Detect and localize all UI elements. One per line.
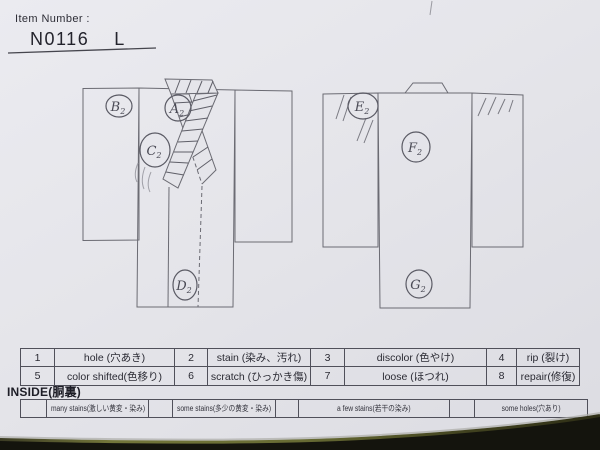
back-body [378, 93, 472, 308]
inside-checkbox-3 [276, 400, 299, 417]
inside-label-2: some stains(多少の黄変・染み) [173, 400, 276, 417]
inside-label-4: some holes(穴あり) [475, 400, 587, 417]
mark-label-g2: G2 [410, 278, 425, 294]
legend-label-7: loose (ほつれ) [345, 367, 487, 385]
legend-code-8: 8 [487, 367, 517, 385]
front-collar [163, 79, 218, 188]
inside-lining-table: many stains(激しい黄変・染み) some stains(多少の黄変・… [20, 399, 588, 418]
legend-code-4: 4 [487, 349, 517, 367]
mark-label-c2: C2 [146, 144, 161, 160]
legend-code-1: 1 [21, 349, 55, 367]
shoulder-hatch-right [478, 97, 513, 116]
inside-checkbox-1 [21, 400, 47, 417]
legend-label-3: discolor (色やけ) [345, 349, 487, 367]
legend-code-2: 2 [175, 349, 208, 367]
back-right-sleeve [472, 93, 523, 247]
legend-code-7: 7 [311, 367, 345, 385]
inside-section-title: INSIDE(胴裏) [7, 383, 81, 400]
mark-label-f2: F2 [407, 141, 422, 157]
condition-mark-circles [106, 93, 432, 300]
mark-label-e2: E2 [354, 100, 370, 116]
back-collar [405, 83, 448, 93]
legend-label-2: stain (染み、汚れ) [208, 349, 311, 367]
mark-label-d2: D2 [175, 279, 192, 295]
back-kimono-diagram [323, 83, 523, 308]
back-left-sleeve [323, 93, 378, 247]
mark-label-b2: B2 [110, 100, 126, 116]
legend-label-8: repair(修復) [517, 367, 579, 385]
legend-code-6: 6 [175, 367, 208, 385]
legend-code-3: 3 [311, 349, 345, 367]
inside-label-3: a few stains(若干の染み) [299, 400, 450, 417]
stray-pencil-mark [430, 1, 432, 15]
legend-label-4: rip (裂け) [517, 349, 579, 367]
front-opening-dashed [198, 186, 202, 307]
front-panel-seam [168, 187, 169, 307]
item-number-underline [8, 48, 156, 53]
condition-legend-table: 1 hole (穴あき) 2 stain (染み、汚れ) 3 discolor … [20, 348, 580, 386]
legend-label-1: hole (穴あき) [55, 349, 175, 367]
front-right-sleeve [235, 90, 292, 242]
pencil-scribbles [135, 163, 151, 192]
scanned-inspection-sheet: Item Number : N0116 L [0, 0, 600, 450]
legend-label-6: scratch (ひっかき傷) [208, 367, 311, 385]
inside-checkbox-2 [149, 400, 173, 417]
inside-label-1: many stains(激しい黄変・染み) [47, 400, 149, 417]
inside-checkbox-4 [450, 400, 475, 417]
